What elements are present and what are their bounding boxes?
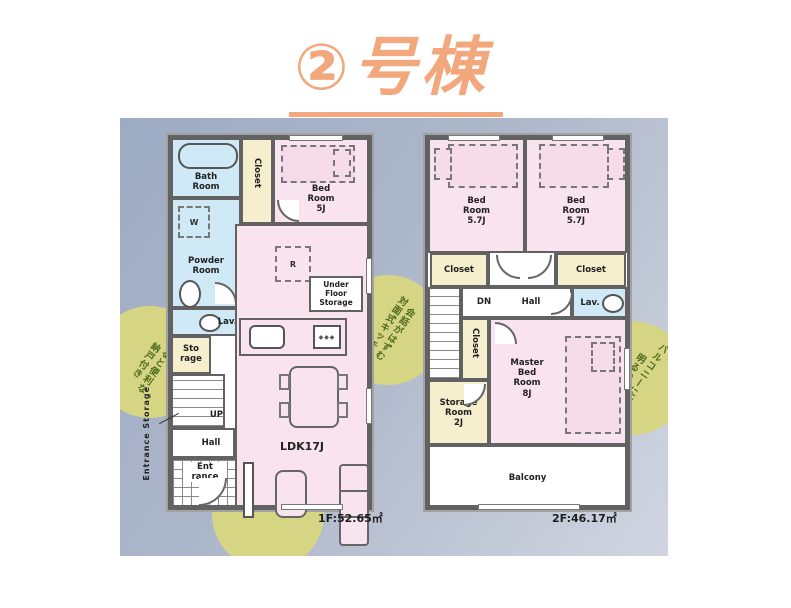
hall-upper (488, 253, 556, 287)
stove-icon: ◆◆◆ (313, 325, 341, 349)
room-bathroom: Bath Room (171, 138, 241, 198)
sink-icon (249, 325, 285, 349)
under-floor-storage-label: Under Floor Storage (311, 280, 361, 307)
pillow-icon (607, 148, 625, 180)
room-hall-1f: Hall (171, 428, 235, 458)
backdrop: あると便利な 納戸付き 会話がはずむ 対面式キッチン バルコニーに面した 明るい… (120, 118, 668, 556)
balcony-label: Balcony (430, 473, 625, 483)
storage-1f-label: Sto rage (173, 344, 209, 364)
under-floor-storage-box: Under Floor Storage (309, 276, 363, 312)
room-closet-2f-right: Closet (556, 253, 626, 287)
toilet-icon (602, 294, 624, 313)
lav-1f-label: Lav. (191, 317, 237, 327)
window (366, 258, 372, 294)
chair-icon (279, 402, 290, 418)
stairs-up-icon: UP (171, 374, 225, 428)
floorplan-page: ②号棟 あると便利な 納戸付き 会話がはずむ 対面式キッチン バルコニーに面した… (0, 0, 791, 608)
tv-icon (243, 462, 254, 518)
pillow-icon (591, 342, 615, 372)
fridge-icon: R (275, 246, 311, 282)
room-powder: W Powder Room (171, 198, 241, 308)
ldk-label: LDK17J (237, 440, 367, 453)
master-bedroom-label: Master Bed Room 8J (477, 358, 577, 399)
storage-2f-label: Storage Room 2J (430, 398, 487, 429)
chair-icon (337, 374, 348, 390)
dining-table-icon (289, 366, 339, 428)
room-lav-1f: Lav. (171, 308, 241, 336)
room-bedroom-left: Bed Room 5.7J (428, 138, 525, 253)
window (448, 135, 500, 141)
room-closet-1f: Closet (241, 138, 273, 224)
washer-label: W (190, 218, 199, 227)
lav-2f-label: Lav. (576, 298, 604, 308)
kitchen-counter: ◆◆◆ (239, 318, 347, 356)
entrance-door-arc (199, 478, 227, 506)
door-arc (528, 255, 552, 279)
bathtub-icon (178, 143, 238, 169)
stairs-up-label: UP (189, 410, 223, 420)
bed-icon (448, 144, 518, 188)
room-lav-2f: Lav. (572, 287, 627, 318)
powder-label: Powder Room (173, 256, 239, 276)
stairs-down-icon (428, 287, 461, 380)
washer-icon: W (178, 206, 210, 238)
bathroom-label: Bath Room (173, 172, 239, 192)
coffee-table-icon (275, 470, 307, 518)
door-arc (277, 200, 299, 222)
floor2-plan: Bed Room 5.7J Bed Room 5.7J Closet Close… (425, 135, 630, 510)
chair-icon (279, 374, 290, 390)
page-title: ②号棟 (288, 16, 502, 117)
room-storage-2f: Storage Room 2J (428, 380, 489, 445)
room-master-bedroom: Master Bed Room 8J (489, 318, 627, 445)
floor1-plan: Bath Room Closet Bed Room 5J W Powder Ro… (168, 135, 372, 510)
window (552, 135, 604, 141)
closet-2f-mid-label: Closet (470, 328, 480, 358)
room-bedroom-right: Bed Room 5.7J (525, 138, 627, 253)
entrance-storage-label: Entrance Storage (142, 386, 151, 481)
hall-2f-label: Hall (511, 297, 551, 307)
door-arc (495, 322, 517, 344)
sofa-icon (339, 464, 369, 546)
room-bedroom-5j: Bed Room 5J (273, 138, 369, 224)
closet-2f-right-label: Closet (558, 265, 624, 275)
window (289, 135, 343, 141)
room-hall-2f: DN Hall (461, 287, 572, 318)
bedroom-left-label: Bed Room 5.7J (430, 196, 523, 227)
window (366, 388, 372, 424)
window (624, 348, 630, 390)
hall-1f-label: Hall (181, 438, 241, 448)
room-ldk: R Under Floor Storage ◆◆◆ LDK17J (235, 224, 369, 507)
bedroom-right-label: Bed Room 5.7J (527, 196, 625, 227)
door-arc (551, 293, 573, 315)
floor2-area-label: 2F:46.17㎡ (552, 510, 617, 526)
bed-icon (539, 144, 609, 188)
burners-icon: ◆◆◆ (319, 334, 336, 341)
room-storage-1f: Sto rage (171, 336, 211, 374)
closet-1f-label: Closet (252, 158, 262, 188)
basin-icon (179, 280, 201, 308)
door-arc (215, 282, 237, 304)
door-arc (496, 255, 520, 279)
pillow-icon (434, 148, 452, 180)
floor1-area-label: 1F:52.65㎡ (318, 510, 383, 526)
room-balcony: Balcony (428, 445, 627, 507)
fridge-label: R (290, 260, 296, 269)
closet-2f-left-label: Closet (432, 265, 486, 275)
room-closet-2f-left: Closet (430, 253, 488, 287)
chair-icon (337, 402, 348, 418)
pillow-icon (333, 149, 351, 177)
dn-label: DN (469, 297, 499, 307)
